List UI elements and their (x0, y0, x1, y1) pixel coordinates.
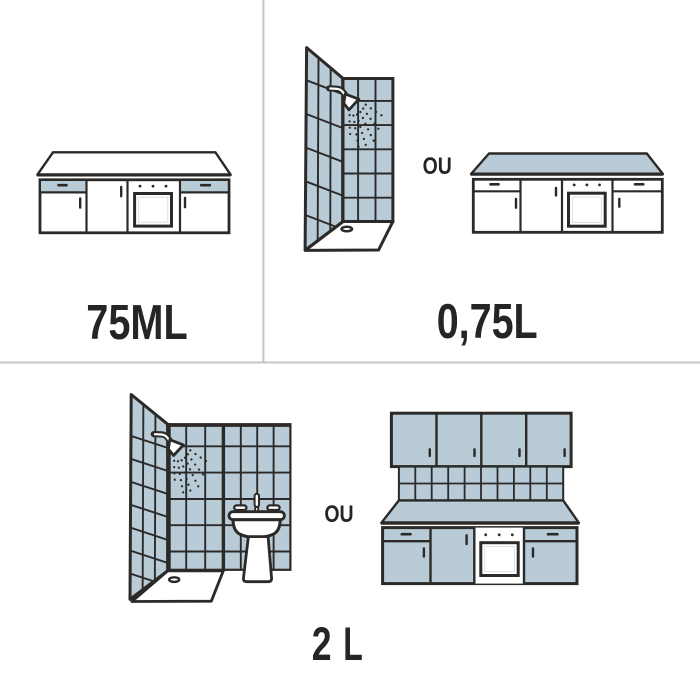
svg-text:2: 2 (312, 618, 332, 671)
svg-text:OU: OU (324, 501, 353, 528)
svg-text:75ML: 75ML (86, 296, 188, 350)
svg-text:0,75L: 0,75L (437, 295, 538, 349)
svg-text:OU: OU (423, 153, 452, 180)
svg-text:L: L (343, 618, 363, 671)
